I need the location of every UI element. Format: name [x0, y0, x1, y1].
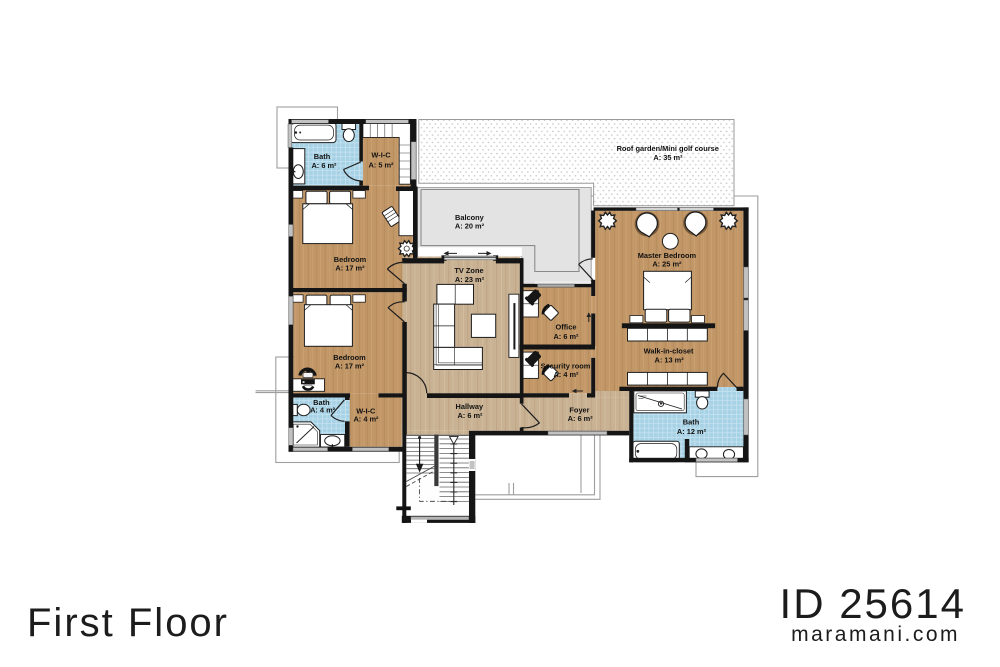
svg-text:Walk-in-closet: Walk-in-closet [644, 347, 694, 356]
svg-text:ID 25614: ID 25614 [780, 580, 966, 627]
svg-text:A: 6 m²: A: 6 m² [311, 161, 337, 170]
svg-text:W-I-C: W-I-C [371, 151, 391, 160]
svg-text:Office: Office [556, 323, 577, 332]
svg-text:A: 4 m²: A: 4 m² [310, 406, 336, 415]
svg-text:Hallway: Hallway [456, 402, 484, 411]
svg-text:A: 6 m²: A: 6 m² [568, 414, 594, 423]
svg-text:First Floor: First Floor [27, 601, 229, 645]
svg-text:Bath: Bath [314, 152, 331, 161]
svg-text:A: 25 m²: A: 25 m² [652, 260, 682, 269]
svg-text:A: 5 m²: A: 5 m² [368, 160, 394, 169]
svg-text:A: 4 m²: A: 4 m² [353, 415, 379, 424]
svg-text:A: 23 m²: A: 23 m² [455, 275, 485, 284]
svg-text:A: 6 m²: A: 6 m² [553, 332, 579, 341]
svg-text:Bath: Bath [683, 418, 700, 427]
svg-text:TV Zone: TV Zone [454, 266, 483, 275]
svg-text:A: 6 m²: A: 6 m² [457, 411, 483, 420]
svg-text:maramani.com: maramani.com [791, 623, 960, 646]
svg-text:A: 35 m²: A: 35 m² [653, 153, 683, 162]
svg-text:A: 17 m²: A: 17 m² [335, 361, 365, 370]
svg-text:A: 17 m²: A: 17 m² [335, 263, 365, 272]
svg-text:A: 13 m²: A: 13 m² [655, 356, 685, 365]
svg-text:Roof garden/Mini golf course: Roof garden/Mini golf course [617, 144, 719, 153]
svg-text:A: 4 m²: A: 4 m² [553, 370, 579, 379]
svg-text:A: 20 m²: A: 20 m² [455, 222, 485, 231]
svg-text:A: 12 m²: A: 12 m² [677, 427, 707, 436]
